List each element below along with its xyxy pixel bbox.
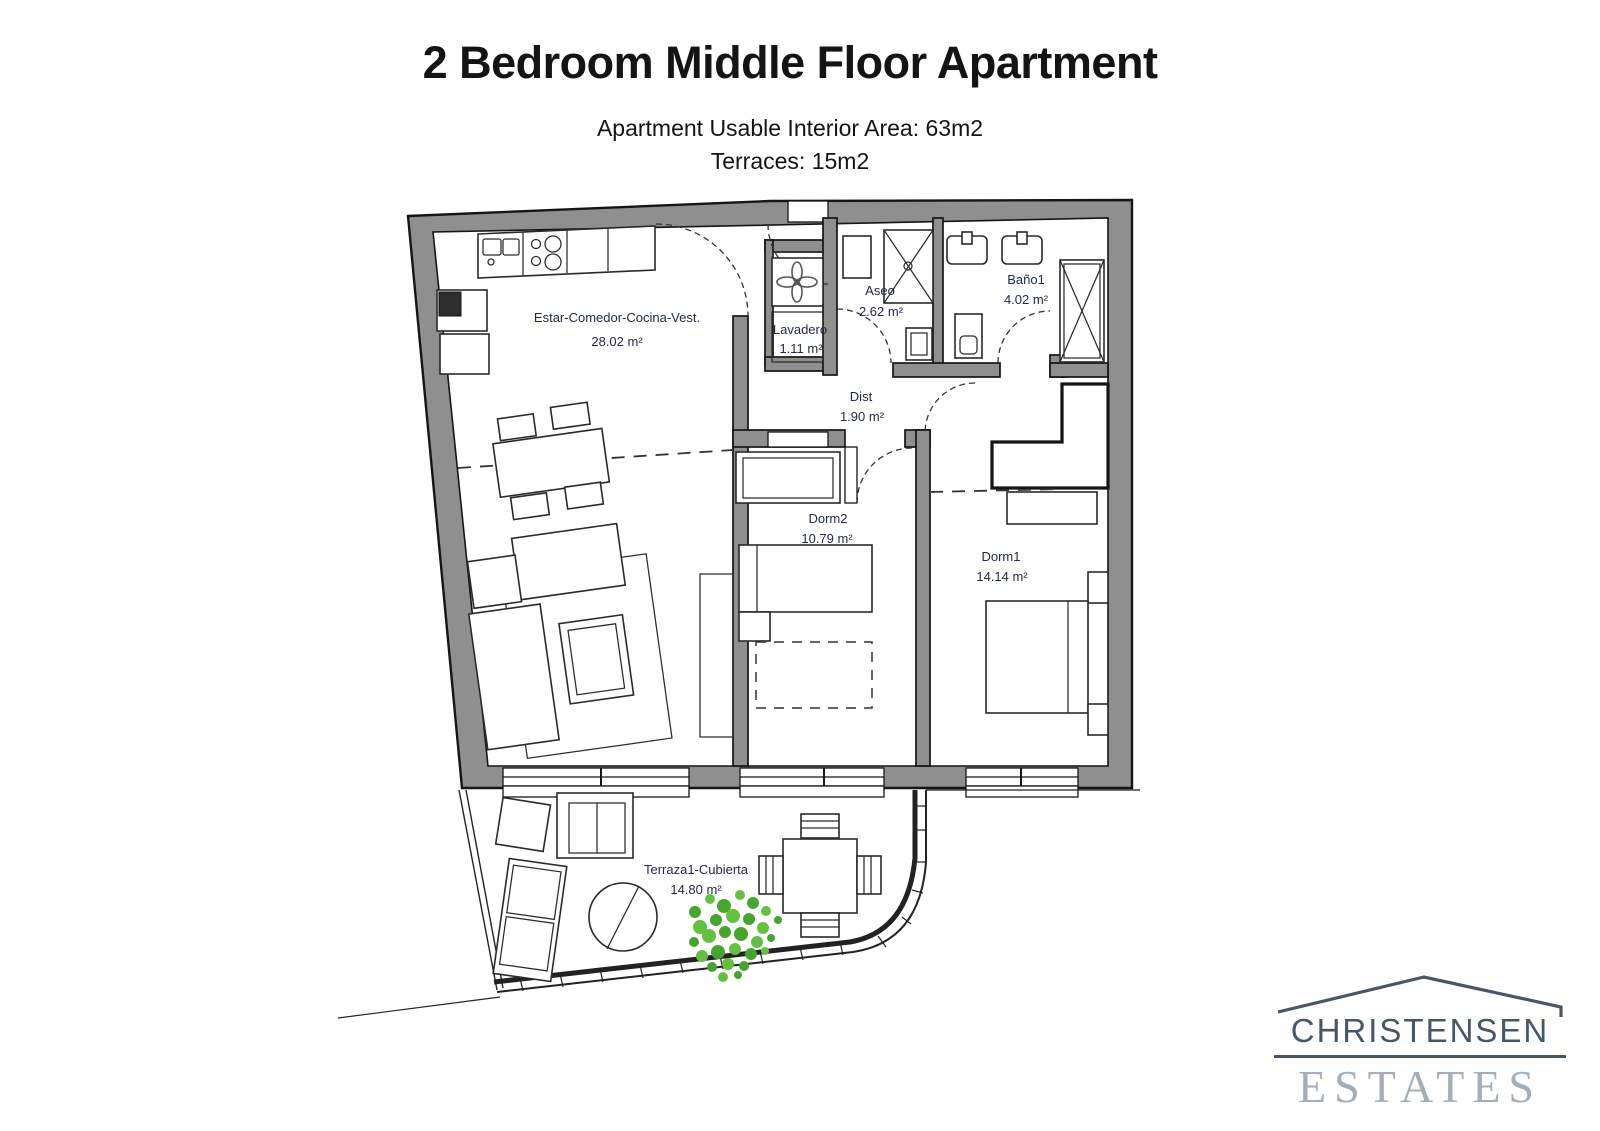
dorm1-bed bbox=[986, 601, 1088, 713]
dorm2-closet bbox=[736, 452, 840, 503]
terrace-cabinet bbox=[557, 793, 633, 858]
room-area-dist: 1.90 m² bbox=[840, 409, 885, 424]
room-area-terraza: 14.80 m² bbox=[670, 882, 722, 897]
terrace-loveseat bbox=[493, 859, 567, 982]
brand-subname: ESTATES bbox=[1272, 1060, 1568, 1113]
room-area-dorm1: 14.14 m² bbox=[976, 569, 1028, 584]
room-label-aseo: Aseo bbox=[865, 283, 895, 298]
room-label-lavadero: Lavadero bbox=[773, 322, 827, 337]
brand-logo: CHRISTENSEN ESTATES bbox=[1272, 968, 1568, 1113]
entry-door-opening bbox=[788, 201, 828, 222]
room-area-bano1: 4.02 m² bbox=[1004, 292, 1049, 307]
dorm2-bed bbox=[739, 545, 872, 612]
roof-icon bbox=[1272, 968, 1568, 1018]
floor-plan: Estar-Comedor-Cocina-Vest. 28.02 m² Lava… bbox=[0, 0, 1600, 1131]
room-label-living: Estar-Comedor-Cocina-Vest. bbox=[534, 310, 700, 325]
terrace-chair bbox=[496, 798, 551, 852]
room-label-terraza: Terraza1-Cubierta bbox=[644, 862, 749, 877]
room-area-aseo: 2.62 m² bbox=[859, 304, 904, 319]
terrace bbox=[338, 790, 1140, 1018]
room-label-dist: Dist bbox=[850, 389, 873, 404]
round-table-icon bbox=[589, 883, 657, 951]
room-area-dorm2: 10.79 m² bbox=[801, 531, 853, 546]
room-label-dorm1: Dorm1 bbox=[981, 549, 1020, 564]
room-area-living: 28.02 m² bbox=[591, 334, 643, 349]
room-label-bano1: Baño1 bbox=[1007, 272, 1045, 287]
page: 2 Bedroom Middle Floor Apartment Apartme… bbox=[0, 0, 1600, 1131]
brand-name: CHRISTENSEN bbox=[1272, 1012, 1568, 1050]
brand-divider bbox=[1274, 1055, 1566, 1058]
room-label-dorm2: Dorm2 bbox=[808, 511, 847, 526]
room-area-lavadero: 1.11 m² bbox=[779, 341, 823, 356]
ground-line bbox=[338, 997, 500, 1018]
